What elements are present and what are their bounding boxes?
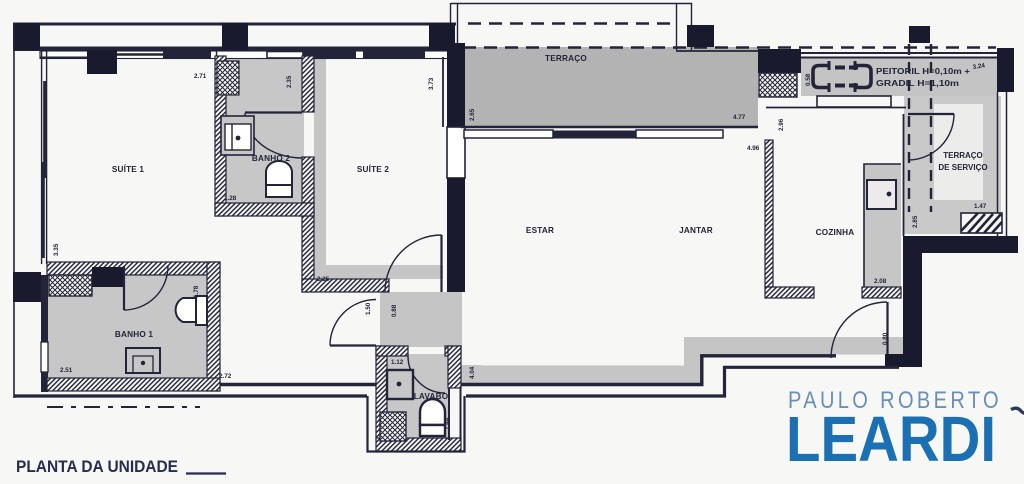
svg-text:BANHO 2: BANHO 2 (252, 154, 290, 163)
svg-text:2.65: 2.65 (469, 108, 476, 121)
svg-text:1.50: 1.50 (365, 302, 372, 315)
svg-text:COZINHA: COZINHA (816, 228, 855, 237)
svg-text:SUÍTE 2: SUÍTE 2 (357, 164, 390, 174)
svg-text:1.47: 1.47 (974, 203, 987, 210)
svg-text:4.77: 4.77 (733, 114, 746, 121)
svg-text:BANHO 1: BANHO 1 (115, 330, 153, 339)
svg-text:1.12: 1.12 (391, 359, 404, 366)
svg-text:1.44: 1.44 (444, 417, 451, 430)
svg-text:2.35: 2.35 (286, 75, 293, 88)
svg-text:2.51: 2.51 (60, 367, 73, 374)
svg-text:SUÍTE 1: SUÍTE 1 (112, 164, 145, 174)
svg-text:LEARDI: LEARDI (786, 403, 996, 475)
svg-text:0.80: 0.80 (882, 332, 889, 345)
svg-text:0.58: 0.58 (805, 73, 812, 86)
svg-text:0.88: 0.88 (391, 304, 398, 317)
svg-text:3.35: 3.35 (53, 243, 60, 256)
svg-text:2.71: 2.71 (194, 73, 207, 80)
svg-text:TERRAÇO: TERRAÇO (545, 54, 587, 63)
svg-text:JANTAR: JANTAR (679, 226, 713, 235)
svg-text:PLANTA DA UNIDADE: PLANTA DA UNIDADE (16, 458, 178, 476)
svg-text:GRADIL H=1,10m: GRADIL H=1,10m (876, 79, 959, 88)
svg-text:2.85: 2.85 (912, 215, 919, 228)
svg-text:DE SERVIÇO: DE SERVIÇO (938, 163, 987, 172)
svg-text:4.96: 4.96 (747, 145, 760, 152)
svg-text:ESTAR: ESTAR (526, 226, 554, 235)
svg-text:1.78: 1.78 (193, 285, 200, 298)
svg-text:4.04: 4.04 (469, 366, 476, 379)
svg-text:2.72: 2.72 (219, 373, 232, 380)
svg-text:3.73: 3.73 (428, 77, 435, 90)
svg-text:TERRAÇO: TERRAÇO (943, 151, 983, 160)
svg-text:2.96: 2.96 (778, 118, 785, 131)
svg-text:PEITORIL H=0,10m +: PEITORIL H=0,10m + (876, 67, 970, 76)
svg-text:2.25: 2.25 (317, 276, 330, 283)
svg-text:1.28: 1.28 (224, 195, 237, 202)
svg-text:2.08: 2.08 (874, 278, 887, 285)
svg-text:LAVABO: LAVABO (414, 392, 449, 401)
